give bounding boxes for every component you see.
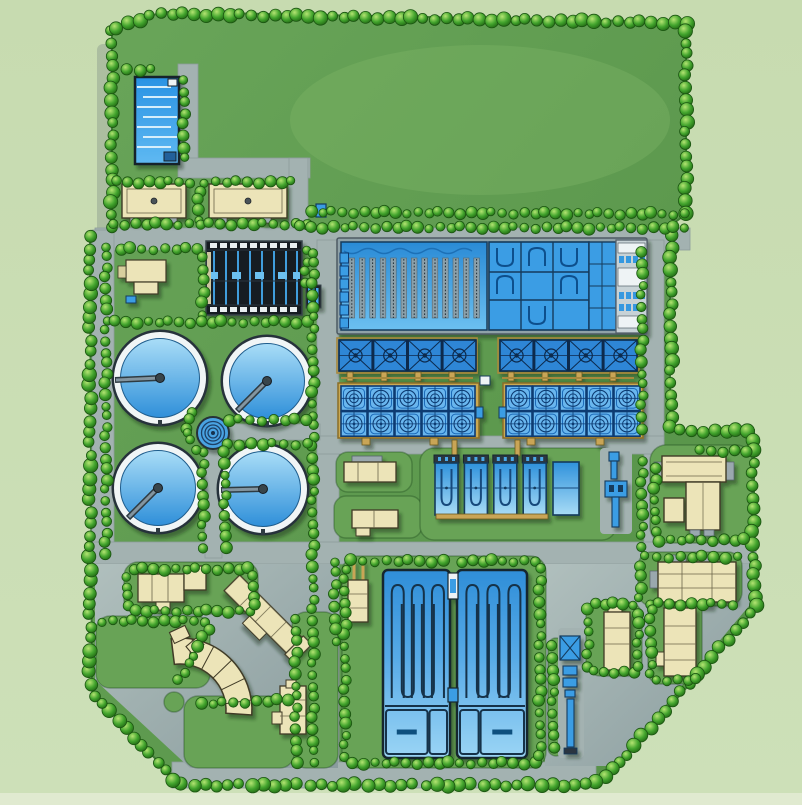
tree-icon: [547, 653, 558, 664]
tree-icon: [211, 177, 220, 186]
tree-icon: [396, 779, 407, 790]
tree-icon: [250, 317, 259, 326]
tree-icon: [658, 210, 666, 218]
tree-icon: [509, 558, 518, 567]
tree-icon: [270, 9, 282, 21]
tree-icon: [289, 656, 300, 667]
tree-icon: [342, 731, 350, 739]
tree-icon: [192, 445, 201, 454]
tree-icon: [306, 222, 317, 233]
tree-icon: [591, 598, 601, 608]
tree-icon: [534, 653, 544, 663]
tree-icon: [197, 521, 205, 529]
tree-icon: [144, 10, 154, 20]
tree-icon: [550, 688, 558, 696]
tree-icon: [100, 431, 110, 441]
tree-icon: [286, 176, 294, 184]
tree-icon: [192, 204, 204, 216]
tree-icon: [497, 12, 511, 26]
tree-icon: [83, 472, 97, 486]
tree-icon: [102, 357, 112, 367]
tree-icon: [648, 222, 659, 233]
tree-icon: [190, 563, 199, 572]
tree-icon: [645, 16, 658, 29]
tree-icon: [184, 414, 194, 424]
tree-icon: [720, 552, 732, 564]
tree-icon: [550, 208, 561, 219]
tree-icon: [619, 666, 629, 676]
tree-icon: [667, 696, 678, 707]
tree-icon: [100, 325, 109, 334]
tree-icon: [290, 724, 300, 734]
tree-icon: [332, 580, 342, 590]
tree-icon: [180, 242, 190, 252]
tree-icon: [583, 223, 595, 235]
tree-icon: [615, 222, 624, 231]
tree-icon: [308, 683, 317, 692]
tree-icon: [100, 443, 110, 453]
tree-icon: [339, 696, 350, 707]
tree-icon: [679, 81, 692, 94]
building-e: Pump station: [604, 602, 630, 670]
tree-icon: [543, 16, 555, 28]
tree-icon: [310, 312, 318, 320]
tree-icon: [257, 439, 269, 451]
tree-icon: [587, 14, 601, 28]
tree-icon: [163, 316, 172, 325]
tree-icon: [120, 316, 131, 327]
tree-icon: [664, 599, 674, 609]
tree-icon: [430, 777, 444, 791]
tree-icon: [310, 595, 319, 604]
tree-icon: [593, 207, 602, 216]
tree-icon: [307, 496, 316, 505]
tree-icon: [192, 193, 203, 204]
tree-icon: [548, 721, 558, 731]
tree-icon: [123, 590, 133, 600]
tree-icon: [473, 13, 486, 26]
tree-icon: [348, 10, 359, 21]
tree-icon: [676, 551, 686, 561]
tree-icon: [305, 780, 316, 791]
tree-icon: [749, 458, 759, 468]
tree-icon: [291, 745, 302, 756]
tree-icon: [309, 575, 317, 583]
tree-icon: [221, 479, 230, 488]
tree-icon: [113, 714, 127, 728]
tree-icon: [663, 263, 677, 277]
tree-icon: [307, 333, 316, 342]
tree-icon: [246, 438, 257, 449]
tree-icon: [329, 601, 340, 612]
north-building-east: North outbuilding east: [209, 184, 287, 223]
tree-icon: [665, 377, 676, 388]
tree-icon: [109, 22, 122, 35]
tree-icon: [696, 550, 707, 561]
tree-icon: [105, 152, 117, 164]
tree-icon: [185, 318, 195, 328]
tree-icon: [200, 9, 213, 22]
tree-icon: [166, 773, 180, 787]
tree-icon: [665, 365, 675, 375]
tree-icon: [107, 60, 119, 72]
tree-icon: [455, 221, 465, 231]
tree-icon: [652, 553, 661, 562]
tree-icon: [197, 468, 207, 478]
tree-icon: [336, 778, 350, 792]
tree-icon: [569, 779, 581, 791]
tree-icon: [690, 673, 700, 683]
tree-icon: [178, 130, 189, 141]
tree-icon: [252, 696, 262, 706]
tree-icon: [686, 425, 697, 436]
tree-icon: [669, 211, 678, 220]
tree-icon: [509, 210, 518, 219]
tree-icon: [360, 206, 370, 216]
tree-icon: [423, 757, 434, 768]
tree-icon: [291, 757, 303, 769]
tree-icon: [347, 757, 358, 768]
clarifier-2: [221, 335, 314, 428]
tree-icon: [308, 636, 319, 647]
tree-icon: [520, 223, 529, 232]
tree-icon: [178, 142, 190, 154]
tree-icon: [734, 552, 742, 560]
tree-icon: [292, 635, 302, 645]
tree-icon: [102, 243, 111, 252]
tree-icon: [637, 224, 647, 234]
tree-icon: [360, 11, 372, 23]
tree-icon: [645, 669, 654, 678]
tree-icon: [84, 542, 94, 552]
tree-icon: [104, 81, 117, 94]
tree-icon: [150, 217, 161, 228]
tree-icon: [596, 223, 604, 231]
tree-icon: [589, 666, 598, 675]
tree-icon: [217, 697, 226, 706]
tree-icon: [635, 570, 646, 581]
tree-icon: [84, 587, 97, 600]
tree-icon: [121, 64, 132, 75]
tree-icon: [498, 209, 507, 218]
tree-icon: [134, 65, 146, 77]
tree-icon: [101, 303, 113, 315]
tree-icon: [86, 622, 97, 633]
tree-icon: [371, 13, 384, 26]
tree-icon: [746, 467, 757, 478]
tree-icon: [407, 778, 418, 789]
tree-icon: [85, 531, 96, 542]
tree-icon: [665, 341, 679, 355]
tree-icon: [640, 551, 648, 559]
tree-icon: [294, 220, 304, 230]
tree-icon: [412, 759, 422, 769]
tree-icon: [371, 224, 381, 234]
tree-icon: [122, 573, 131, 582]
tree-icon: [637, 302, 646, 311]
tree-icon: [664, 308, 676, 320]
tree-icon: [183, 605, 193, 615]
tree-icon: [137, 562, 148, 573]
tree-icon: [201, 604, 212, 615]
rake-hub: [154, 484, 163, 493]
tree-icon: [342, 565, 351, 574]
tree-icon: [198, 499, 209, 510]
tree-icon: [487, 207, 495, 215]
tree-icon: [185, 659, 194, 668]
tree-icon: [436, 222, 445, 231]
tree-icon: [308, 508, 317, 517]
tree-icon: [161, 607, 170, 616]
tree-icon: [402, 554, 412, 564]
tree-icon: [636, 400, 646, 410]
tree-icon: [645, 626, 656, 637]
tree-icon: [174, 317, 184, 327]
tree-icon: [198, 274, 209, 285]
tree-icon: [340, 642, 348, 650]
tree-icon: [102, 251, 111, 260]
tree-icon: [174, 221, 182, 229]
tree-icon: [338, 208, 347, 217]
tree-icon: [101, 463, 112, 474]
sludge-drying-beds: Inclined sludge drying beds: [135, 77, 179, 164]
tree-icon: [549, 730, 559, 740]
tree-icon: [666, 535, 674, 543]
tree-icon: [85, 230, 97, 242]
tree-icon: [219, 511, 229, 521]
site-plan-frame: Wastewater treatment plant site plan: [0, 0, 802, 805]
tree-icon: [455, 759, 463, 767]
tree-icon: [708, 551, 719, 562]
tree-icon: [308, 249, 317, 258]
tree-icon: [120, 221, 130, 231]
tree-icon: [239, 319, 248, 328]
tree-icon: [265, 176, 276, 187]
tree-icon: [290, 778, 302, 790]
tree-icon: [234, 440, 245, 451]
tree-icon: [426, 557, 437, 568]
tree-icon: [144, 317, 152, 325]
tree-icon: [341, 663, 350, 672]
tree-icon: [198, 532, 207, 541]
tree-icon: [638, 370, 646, 378]
tree-icon: [678, 194, 692, 208]
tree-icon: [536, 721, 545, 730]
tree-icon: [421, 781, 431, 791]
tree-icon: [291, 441, 300, 450]
tree-icon: [512, 780, 522, 790]
tree-icon: [269, 220, 278, 229]
tree-icon: [246, 10, 257, 21]
rake-hub: [156, 374, 165, 383]
tree-icon: [371, 758, 379, 766]
tree-icon: [635, 630, 643, 638]
tree-icon: [639, 522, 647, 530]
tree-icon: [438, 554, 450, 566]
tree-icon: [667, 221, 679, 233]
tree-icon: [196, 296, 208, 308]
tree-icon: [747, 502, 760, 515]
tree-icon: [664, 554, 673, 563]
tree-icon: [219, 499, 229, 509]
tree-icon: [501, 781, 512, 792]
tree-icon: [382, 556, 391, 565]
tree-icon: [309, 583, 318, 592]
tree-icon: [681, 160, 693, 172]
tree-icon: [542, 222, 552, 232]
tree-icon: [653, 535, 665, 547]
tree-icon: [349, 209, 359, 219]
tree-icon: [534, 597, 545, 608]
tree-icon: [102, 517, 112, 527]
tree-icon: [246, 779, 260, 793]
tree-icon: [390, 207, 402, 219]
tree-icon: [185, 219, 194, 228]
tree-icon: [340, 717, 352, 729]
tree-icon: [84, 416, 96, 428]
tree-icon: [652, 676, 660, 684]
tree-icon: [561, 221, 572, 232]
tree-icon: [292, 682, 300, 690]
tree-icon: [306, 205, 318, 217]
tree-icon: [222, 780, 233, 791]
tree-icon: [175, 178, 184, 187]
tree-icon: [663, 677, 672, 686]
tree-icon: [433, 206, 443, 216]
tree-icon: [414, 208, 423, 217]
tree-icon: [257, 417, 266, 426]
tree-icon: [100, 485, 108, 493]
tree-icon: [478, 780, 490, 792]
tree-icon: [197, 252, 207, 262]
lawn-highlight: [290, 45, 670, 195]
tree-icon: [537, 619, 545, 627]
tree-icon: [327, 206, 336, 215]
tree-icon: [738, 533, 750, 545]
aeration-complex: Aeration basin complex Blowe: [337, 238, 647, 334]
tree-icon: [86, 633, 96, 643]
rake-hub: [259, 485, 268, 494]
tree-icon: [112, 176, 122, 186]
tree-icon: [536, 563, 546, 573]
tree-icon: [290, 8, 303, 21]
tree-icon: [104, 94, 118, 108]
inter-tab: [499, 407, 506, 418]
tree-icon: [584, 618, 592, 626]
tree-icon: [103, 195, 117, 209]
tree-icon: [636, 412, 646, 422]
tree-icon: [201, 564, 211, 574]
tree-icon: [209, 700, 217, 708]
tree-icon: [99, 271, 109, 281]
tree-icon: [246, 416, 255, 425]
tree-icon: [636, 290, 645, 299]
tree-icon: [84, 276, 98, 290]
tree-icon: [468, 555, 479, 566]
tree-icon: [248, 571, 258, 581]
tree-icon: [645, 206, 657, 218]
tree-icon: [535, 709, 543, 717]
tree-icon: [327, 781, 337, 791]
tree-icon: [496, 756, 506, 766]
tree-icon: [122, 177, 132, 187]
tree-icon: [223, 415, 235, 427]
tree-icon: [161, 244, 170, 253]
tree-icon: [580, 778, 591, 789]
tree-icon: [240, 699, 250, 709]
tree-icon: [678, 181, 691, 194]
tree-icon: [636, 531, 645, 540]
tree-icon: [316, 779, 327, 790]
tree-icon: [695, 445, 704, 454]
bottom-margin-strip: [0, 793, 802, 805]
tree-icon: [418, 13, 428, 23]
tree-icon: [148, 563, 159, 574]
tree-icon: [85, 392, 98, 405]
tree-icon: [269, 315, 279, 325]
tree-icon: [461, 11, 474, 24]
tree-icon: [235, 606, 243, 614]
tree-icon: [546, 640, 556, 650]
tree-icon: [289, 413, 300, 424]
tree-icon: [310, 746, 318, 754]
tree-icon: [708, 536, 718, 546]
tree-icon: [331, 558, 340, 567]
tree-icon: [186, 435, 195, 444]
tree-icon: [179, 615, 187, 623]
tree-icon: [212, 565, 222, 575]
tree-icon: [478, 758, 487, 767]
tree-icon: [741, 446, 752, 457]
tree-icon: [635, 356, 647, 368]
tree-icon: [633, 15, 645, 27]
tree-icon: [282, 694, 294, 706]
tree-icon: [309, 257, 319, 267]
tree-icon: [308, 473, 320, 485]
tree-icon: [108, 118, 118, 128]
tree-icon: [254, 178, 265, 189]
tree-icon: [310, 758, 319, 767]
tree-icon: [127, 615, 137, 625]
tree-icon: [638, 323, 648, 333]
tree-icon: [133, 178, 144, 189]
tree-icon: [221, 471, 229, 479]
tree-icon: [633, 650, 642, 659]
tree-icon: [331, 567, 340, 576]
tree-icon: [412, 221, 424, 233]
tree-icon: [521, 776, 535, 790]
tree-icon: [306, 278, 317, 289]
tree-icon: [519, 13, 530, 24]
tree-icon: [300, 266, 309, 275]
tree-icon: [639, 391, 648, 400]
tree-icon: [572, 222, 583, 233]
tree-icon: [466, 222, 476, 232]
tree-icon: [457, 557, 467, 567]
tree-icon: [84, 255, 95, 266]
tree-icon: [666, 286, 677, 297]
tree-icon: [258, 11, 269, 22]
tree-icon: [229, 698, 238, 707]
tree-icon: [441, 12, 452, 23]
tree-icon: [176, 7, 188, 19]
roof-vent: [151, 198, 157, 204]
tree-icon: [211, 781, 222, 792]
tree-icon: [306, 386, 318, 398]
tree-icon: [156, 8, 167, 19]
tree-icon: [498, 557, 506, 565]
tree-icon: [301, 414, 312, 425]
